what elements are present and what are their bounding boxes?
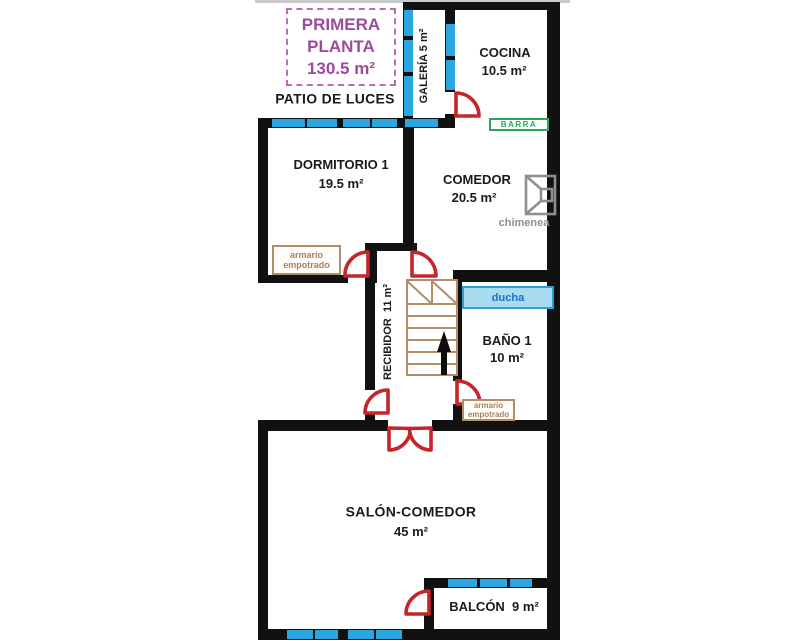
stairs [407, 280, 457, 375]
window-divider [507, 579, 510, 587]
title-box: PRIMERA PLANTA 130.5 m² [286, 8, 396, 86]
comedor-area: 20.5 m² [452, 191, 497, 205]
barra-box: BARRA [489, 118, 549, 131]
door-arc-balcon [406, 591, 429, 614]
ducha-label: ducha [492, 292, 524, 304]
wall-dormitorio-comedor [403, 120, 414, 251]
galeria-label: GALERÍA 5 m² [418, 29, 430, 104]
chimenea-diagonal [526, 201, 541, 214]
barra-label: BARRA [501, 120, 537, 129]
recibidor-label: RECIBIDOR 11 m² [382, 284, 394, 380]
salon-name: SALÓN-COMEDOR [346, 504, 477, 519]
door-arc-comedor [412, 252, 436, 276]
chimenea-diagonal [526, 176, 541, 189]
wall-salon-top-right [432, 420, 558, 431]
door-arc-salon-double-right [410, 428, 432, 450]
wall-salon-left [258, 420, 268, 640]
armario-label-1: armario empotrado [274, 250, 339, 271]
wall-bano-left-stub [453, 404, 462, 421]
salon-area: 45 m² [394, 525, 428, 539]
window-patio-3 [405, 119, 438, 127]
wall-recibidor-left [365, 283, 375, 390]
wall-right [547, 2, 560, 640]
armario-label-2: armario empotrado [464, 401, 513, 419]
window-divider [305, 119, 307, 127]
bano-name: BAÑO 1 [482, 334, 531, 348]
dormitorio-area: 19.5 m² [319, 177, 364, 191]
window-galeria-left-1 [404, 10, 413, 36]
dormitorio-name: DORMITORIO 1 [293, 158, 388, 172]
cocina-area: 10.5 m² [482, 64, 527, 78]
armario-box-dormitorio: armario empotrado [272, 245, 341, 275]
window-divider [370, 119, 372, 127]
ducha-box: ducha [462, 286, 554, 309]
window-divider [313, 630, 315, 639]
title-line-2: PLANTA [307, 36, 375, 58]
window-divider [477, 579, 480, 587]
window-salon-1 [287, 630, 338, 639]
wall-top [403, 2, 560, 10]
window-patio-1 [272, 119, 337, 127]
title-line-1: PRIMERA [302, 14, 380, 36]
door-arc-galeria-cocina [456, 93, 479, 116]
wall-dormitorio-bottom [258, 275, 348, 283]
window-balcon [448, 579, 532, 587]
window-galeria-right-2 [446, 60, 455, 90]
floor-plan-drawing [0, 0, 800, 640]
chimenea-label: chimenea [499, 217, 550, 229]
wall-dormitorio-left [258, 118, 268, 283]
wall-bano-top [453, 270, 558, 282]
window-galeria-left-3 [404, 76, 413, 116]
window-divider [374, 630, 376, 639]
title-area: 130.5 m² [307, 58, 375, 80]
door-arc-dormitorio [345, 252, 368, 276]
window-galeria-left-2 [404, 40, 413, 72]
bano-area: 10 m² [490, 351, 524, 365]
door-arc-salon-double-left [389, 428, 411, 450]
wall-salon-top-left [258, 420, 388, 431]
window-galeria-right-1 [446, 24, 455, 56]
armario-box-bano: armario empotrado [462, 399, 515, 421]
cocina-name: COCINA [479, 46, 530, 60]
balcon-label: BALCÓN 9 m² [449, 600, 539, 614]
comedor-name: COMEDOR [443, 173, 511, 187]
floor-plan: PRIMERA PLANTA 130.5 m² PATIO DE LUCES G… [0, 0, 800, 640]
patio-de-luces-label: PATIO DE LUCES [275, 91, 395, 106]
door-arc-recibidor [365, 390, 388, 413]
